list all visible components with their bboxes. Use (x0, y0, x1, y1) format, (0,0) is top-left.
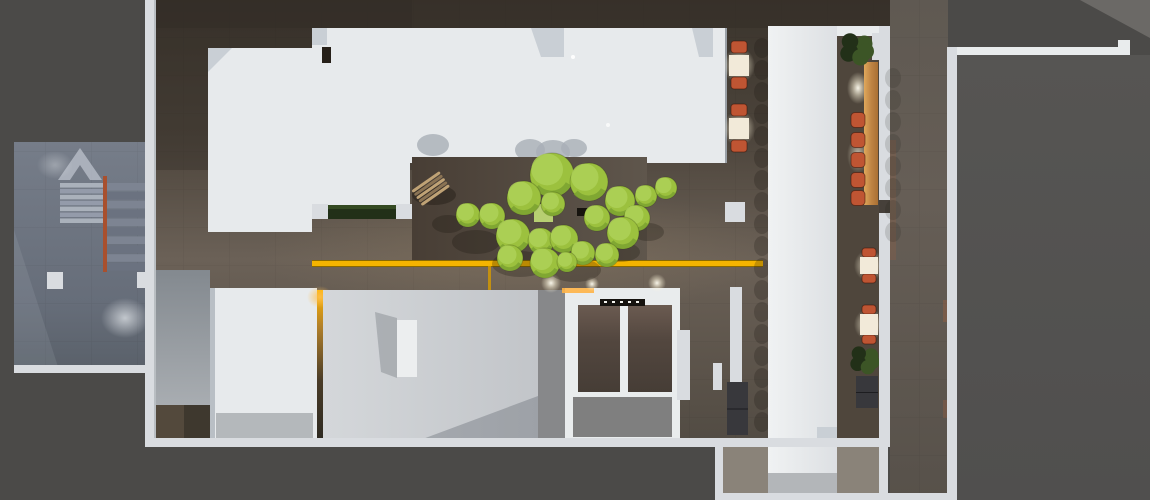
columns-layer (725, 202, 745, 222)
annex-top-parapet (948, 47, 1130, 55)
tree-canopy-highlight (636, 185, 652, 201)
plant-foliage (852, 346, 866, 360)
ceiling-light-glow (648, 274, 666, 292)
chair (862, 274, 876, 283)
tree-canopy-highlight (480, 203, 499, 222)
vestibule-block (562, 288, 680, 440)
gray-floor-band (538, 290, 565, 440)
tree (635, 185, 657, 207)
roof-slot (322, 47, 331, 63)
roof-block-sw-floor-edge (216, 413, 313, 438)
leaf-shadow (885, 156, 901, 176)
roof-shadow-blob (417, 134, 449, 156)
cabinet-seam (727, 409, 748, 410)
leaf-shadow (885, 112, 901, 132)
stair-tread (106, 263, 148, 271)
stair-tread (106, 245, 148, 253)
stair-tread (106, 192, 148, 200)
stair-flight-upper (60, 183, 103, 223)
leaf-shadow (754, 324, 770, 344)
tree (584, 205, 610, 231)
partition-wall-a (677, 330, 690, 400)
leaf-shadow (754, 346, 770, 366)
floor-column (47, 272, 63, 289)
bar-stool (851, 173, 865, 188)
stair-tread (60, 183, 103, 188)
tree-canopy-highlight (497, 220, 521, 244)
vestibule-rear-floor (573, 397, 672, 437)
plant-foliage (865, 355, 879, 369)
tree-canopy-highlight (606, 186, 628, 208)
table-top (860, 314, 878, 335)
tree (497, 245, 523, 271)
streak-continuation (768, 447, 837, 473)
table-top (860, 257, 878, 274)
light-blotch (101, 298, 149, 338)
table-top (729, 55, 749, 76)
stair-tread (106, 254, 148, 262)
roof-b-corner-tab (312, 28, 327, 45)
south-room-wall-e (879, 440, 888, 500)
leaf-shadow (754, 236, 770, 256)
planter-cap-west (312, 204, 328, 219)
leaf-shadow (754, 368, 770, 388)
leaf-shadow (754, 104, 770, 124)
leaf-shadow (885, 68, 901, 88)
bar-stool (851, 191, 865, 206)
chair (731, 41, 747, 53)
stair-railing (103, 176, 107, 272)
south-wall (146, 438, 890, 447)
stair-tread (60, 207, 103, 212)
tree-shadow (452, 230, 500, 254)
cabinet-seam (856, 392, 878, 393)
tree-canopy-highlight (529, 228, 548, 247)
leaf-shadow (754, 192, 770, 212)
chair (731, 140, 747, 152)
corridor-roof-streak (768, 26, 837, 473)
table-top (729, 118, 749, 139)
leaf-shadow (754, 302, 770, 322)
tree-canopy-highlight (531, 248, 553, 270)
leaf-shadow (754, 214, 770, 234)
elevator-door-tick (636, 301, 639, 303)
south-cut-wall (720, 493, 948, 500)
planter-foliage-hi (328, 205, 396, 209)
annex-parapet-notch (1118, 40, 1130, 48)
partition-wall-stub (713, 363, 722, 390)
annex-building (943, 40, 1150, 500)
leaf-shadow (754, 148, 770, 168)
tree-canopy-highlight (498, 245, 517, 264)
leaf-shadow (885, 200, 901, 220)
lit-door-slot (317, 290, 323, 440)
tree-canopy-highlight (558, 252, 572, 266)
chair (731, 77, 747, 89)
room-s-desk (397, 320, 417, 377)
roof-c-wing-edge (725, 28, 727, 163)
west-wall-inner-edge (154, 0, 156, 447)
tree (530, 248, 560, 278)
elevator-door-tick (620, 301, 623, 303)
leaf-shadow (754, 82, 770, 102)
tree-canopy-highlight (551, 225, 571, 245)
tree-canopy-highlight (656, 177, 672, 193)
stair-tread (106, 236, 148, 244)
south-room-floor-2 (837, 447, 879, 500)
stair-tread (106, 210, 148, 218)
leaf-shadow (885, 90, 901, 110)
room-sw-mat-dark (184, 405, 210, 438)
elevator-door-tick (628, 301, 631, 303)
annex-roof-face (957, 55, 1150, 500)
stair-tread (106, 201, 148, 209)
elevator-car-right (628, 305, 672, 392)
tree-canopy-highlight (596, 243, 613, 260)
roof-light-dot (571, 55, 575, 59)
stair-tread (60, 218, 103, 223)
chair (862, 305, 876, 314)
tree (507, 181, 541, 215)
floorplan-render (0, 0, 1150, 500)
stair-tread (60, 189, 103, 194)
stair-hall-south-wall (14, 365, 147, 373)
main-building (145, 0, 890, 473)
stair-tread (60, 213, 103, 218)
tree-canopy-highlight (508, 182, 532, 206)
leaf-shadow (754, 258, 770, 278)
tree-canopy-highlight (571, 164, 598, 191)
roof-block-sw-edge-shade (210, 288, 215, 440)
south-room-floor-1 (723, 447, 768, 500)
tree (655, 177, 677, 199)
leaf-shadow (754, 126, 770, 146)
tree-canopy-highlight (585, 205, 604, 224)
plant-foliage (842, 33, 859, 50)
leaf-shadow (754, 38, 770, 58)
roof-light-dot-2 (606, 123, 610, 127)
stair-tread (106, 183, 148, 191)
stair-hall (14, 142, 151, 373)
bar-stool (851, 113, 865, 128)
south-room-wall-w (715, 440, 723, 500)
tree (570, 163, 608, 201)
elevator-car-left (578, 305, 620, 392)
stair-tread (106, 228, 148, 236)
tree-canopy-highlight (457, 203, 474, 220)
stair-tread (60, 201, 103, 206)
stair-railing-group (103, 176, 107, 272)
tree-canopy-highlight (542, 192, 559, 209)
chair (862, 335, 876, 344)
corridor-column (725, 202, 745, 222)
bar-stools-layer (851, 113, 865, 206)
roof-shadow-blob (561, 139, 587, 157)
tree-canopy-highlight (608, 217, 631, 240)
tree (456, 203, 480, 227)
leaf-shadow (754, 60, 770, 80)
planter-cap-east (396, 204, 412, 219)
chair (731, 104, 747, 116)
tree (557, 252, 577, 272)
tree (595, 243, 619, 267)
tree-canopy-highlight (531, 154, 563, 186)
chair (862, 248, 876, 257)
leaf-shadow (754, 170, 770, 190)
stair-tread (106, 219, 148, 227)
partition-wall-b (730, 287, 742, 382)
bar-stool (851, 153, 865, 168)
tree (541, 192, 565, 216)
elevator-door-tick (604, 301, 607, 303)
bar-counter (864, 62, 878, 205)
leaf-shadow (754, 412, 770, 432)
leaf-shadow (885, 178, 901, 198)
leaf-shadow (885, 134, 901, 154)
yellow-drip (488, 266, 491, 290)
light-blotch-2 (37, 151, 73, 179)
leaf-shadow (754, 280, 770, 300)
plant-foliage (858, 43, 875, 60)
roof-a (208, 48, 312, 232)
architectural-render-stage (0, 0, 1150, 500)
leaf-shadow (754, 390, 770, 410)
elevator-door-tick (612, 301, 615, 303)
leaf-shadow (885, 222, 901, 242)
annex-left-parapet (947, 47, 957, 500)
stair-tread (60, 195, 103, 200)
bar-stool (851, 133, 865, 148)
